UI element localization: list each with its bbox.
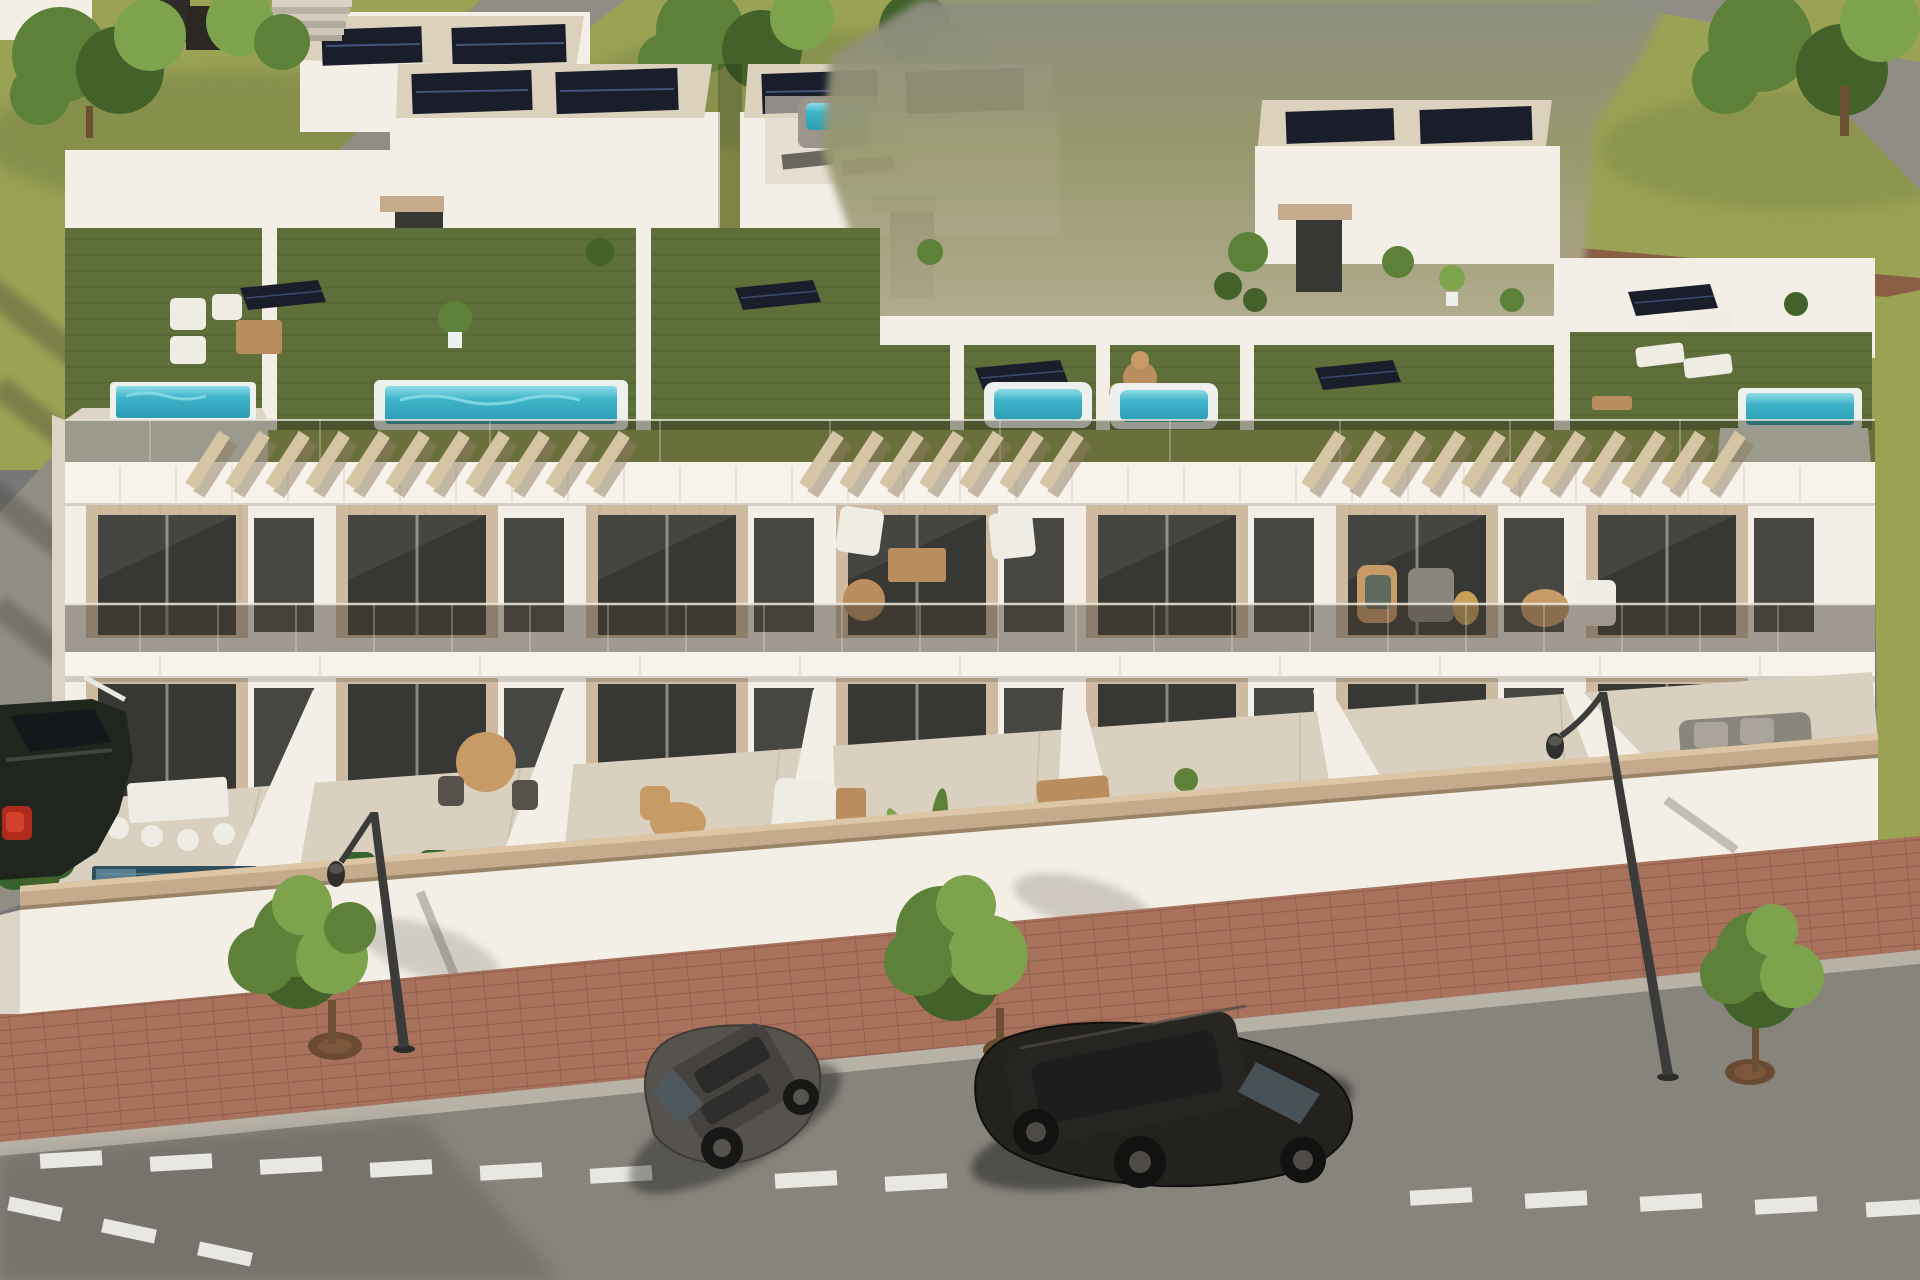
lawn-right-strip	[1872, 290, 1920, 842]
balcony-balustrade	[65, 604, 1875, 652]
rear-parapet-left	[65, 150, 395, 240]
wall-return-left	[0, 910, 20, 1020]
coffee-table	[888, 548, 946, 582]
render-viewport	[0, 0, 1920, 1280]
rear-parapet-mid	[880, 316, 1560, 348]
sofa	[170, 336, 206, 364]
coffee-table	[236, 320, 282, 354]
bench	[1592, 396, 1632, 410]
armchair	[988, 510, 1037, 560]
dining-table	[127, 777, 230, 824]
rattan-chair	[640, 786, 670, 820]
round-rattan-table	[456, 732, 516, 792]
architectural-render	[0, 0, 1920, 1280]
armchair	[212, 294, 242, 320]
roof-access-door	[1296, 220, 1342, 292]
rattan-chair	[1131, 351, 1149, 369]
chair	[438, 776, 464, 806]
sofa	[170, 298, 206, 330]
potted-plant	[1214, 272, 1242, 300]
door-canopy	[1278, 204, 1352, 220]
potted-plant	[1228, 232, 1268, 272]
armchair	[835, 505, 885, 557]
door-canopy	[380, 196, 444, 212]
chair	[512, 780, 538, 810]
balcony-slab	[65, 652, 1875, 678]
